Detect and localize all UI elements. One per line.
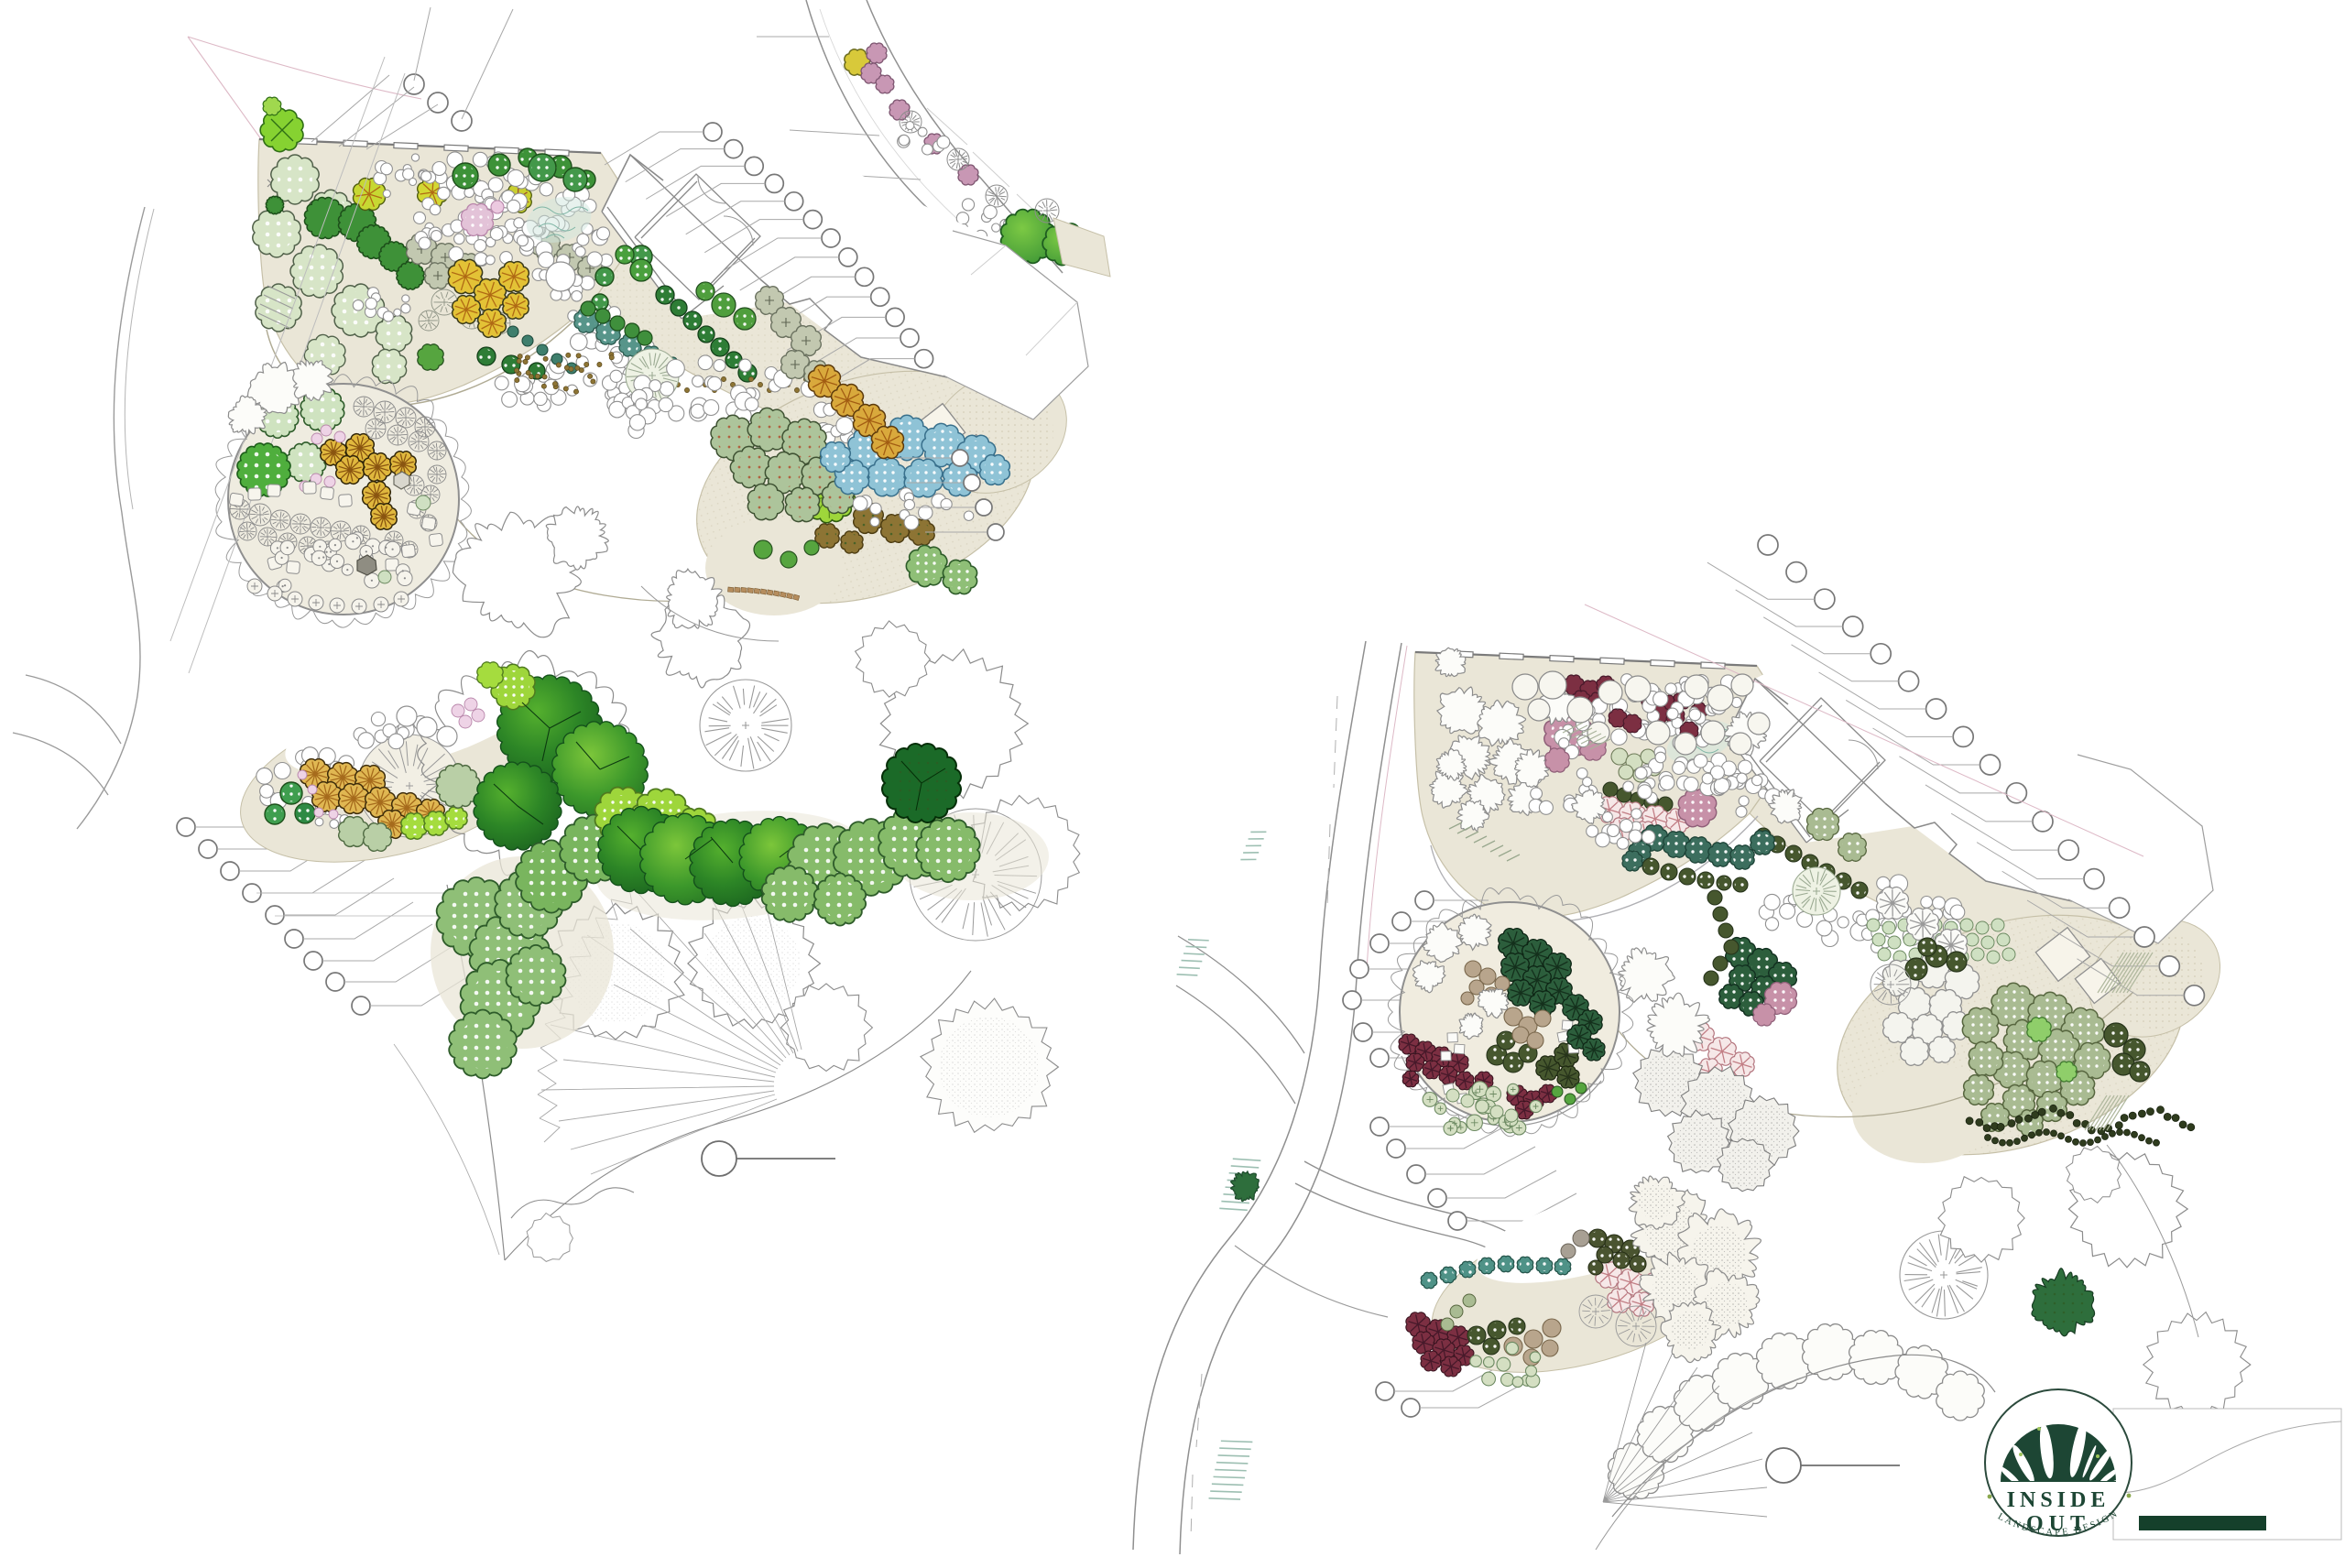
svg-text:INSIDE: INSIDE	[2007, 1488, 2110, 1512]
